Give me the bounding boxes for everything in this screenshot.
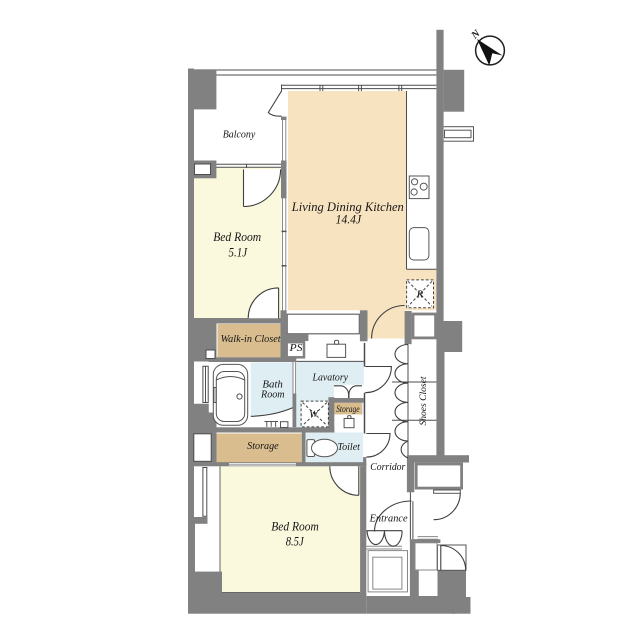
svg-text:Bed Room: Bed Room (271, 519, 319, 534)
svg-text:Lavatory: Lavatory (312, 372, 348, 384)
svg-text:Balcony: Balcony (223, 129, 256, 141)
svg-text:Entrance: Entrance (369, 514, 409, 525)
svg-text:Bed Room: Bed Room (213, 229, 261, 244)
svg-text:14.4J: 14.4J (336, 212, 363, 227)
svg-text:Walk-in Closet: Walk-in Closet (221, 334, 282, 345)
svg-text:W: W (309, 408, 319, 420)
svg-text:5.1J: 5.1J (229, 244, 249, 259)
svg-text:Corridor: Corridor (370, 462, 405, 473)
svg-text:8.5J: 8.5J (286, 534, 305, 549)
svg-text:PS: PS (288, 343, 302, 354)
svg-text:Storage: Storage (336, 404, 360, 414)
svg-text:R: R (416, 290, 424, 301)
svg-text:Storage: Storage (247, 441, 279, 452)
svg-text:Toilet: Toilet (337, 442, 361, 453)
svg-text:Room: Room (260, 390, 285, 401)
svg-text:Shoes Closet: Shoes Closet (419, 376, 429, 425)
